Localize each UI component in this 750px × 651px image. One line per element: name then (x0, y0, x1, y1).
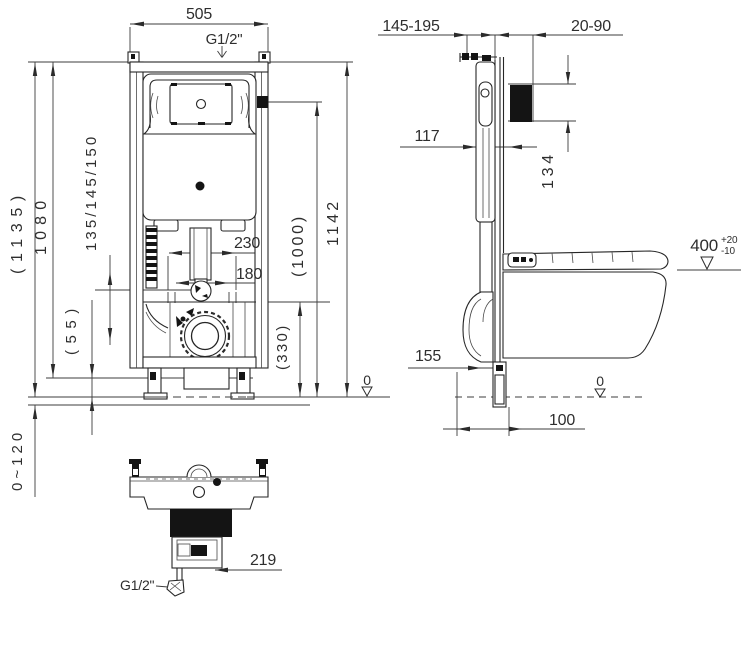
dim-wall-range-label: 20-90 (571, 18, 611, 35)
bottom-view-drawing (129, 459, 282, 596)
side-view-toilet-pan (503, 251, 668, 358)
dim-117-label: 117 (415, 128, 440, 145)
dim-100-label: 100 (549, 412, 575, 429)
bottom-inlet-label: G1/2" (120, 577, 155, 593)
technical-drawing-page: 505 G1/2" (1135) 1080 135/145/150 (55) 0… (0, 0, 750, 651)
wall-section-hatch (510, 85, 532, 122)
dim-219-label: 219 (250, 552, 276, 569)
dim-155-label: 155 (415, 348, 441, 365)
dim-frame-width-label: 505 (186, 6, 212, 23)
side-view-labels: 145-195 20-90 117 134 400 +20 -10 155 10… (382, 18, 738, 429)
dim-spacing-180-label: 180 (236, 266, 262, 283)
front-view-floor-lines (28, 387, 390, 405)
dim-134-label: 134 (540, 155, 557, 189)
dim-foot-adjust-label: 0~120 (9, 433, 26, 491)
dim-seat-tol-lower: -10 (721, 246, 735, 257)
inlet-elbow (167, 580, 184, 596)
dim-water-inlet-label: G1/2" (206, 31, 243, 48)
dim-spacing-230-label: 230 (234, 235, 260, 252)
drain-bend-plan (170, 509, 232, 537)
floor-datum-triangle-front (362, 387, 372, 396)
dim-depth-range-label: 145-195 (382, 18, 440, 35)
dim-seat-height-label: 400 (690, 236, 718, 255)
dim-seat-tol-upper: +20 (721, 235, 738, 246)
front-view-frame (128, 52, 270, 399)
dim-height-1142-label: 1142 (325, 202, 342, 246)
floor-datum-zero-front: 0 (363, 372, 371, 388)
dim-inlet-options-label: 135/145/150 (83, 137, 100, 251)
side-view-dimension-lines (378, 33, 741, 436)
dim-height-1000-label: (1000) (290, 217, 307, 277)
dim-height-1080-label: 1080 (33, 201, 50, 255)
installation-diagram: 505 G1/2" (1135) 1080 135/145/150 (55) 0… (0, 0, 750, 651)
dim-offset-55-label: (55) (63, 309, 80, 355)
floor-datum-zero-side: 0 (596, 373, 604, 389)
dim-height-330-label: (330) (274, 326, 291, 370)
dim-height-1135-label: (1135) (9, 196, 26, 274)
